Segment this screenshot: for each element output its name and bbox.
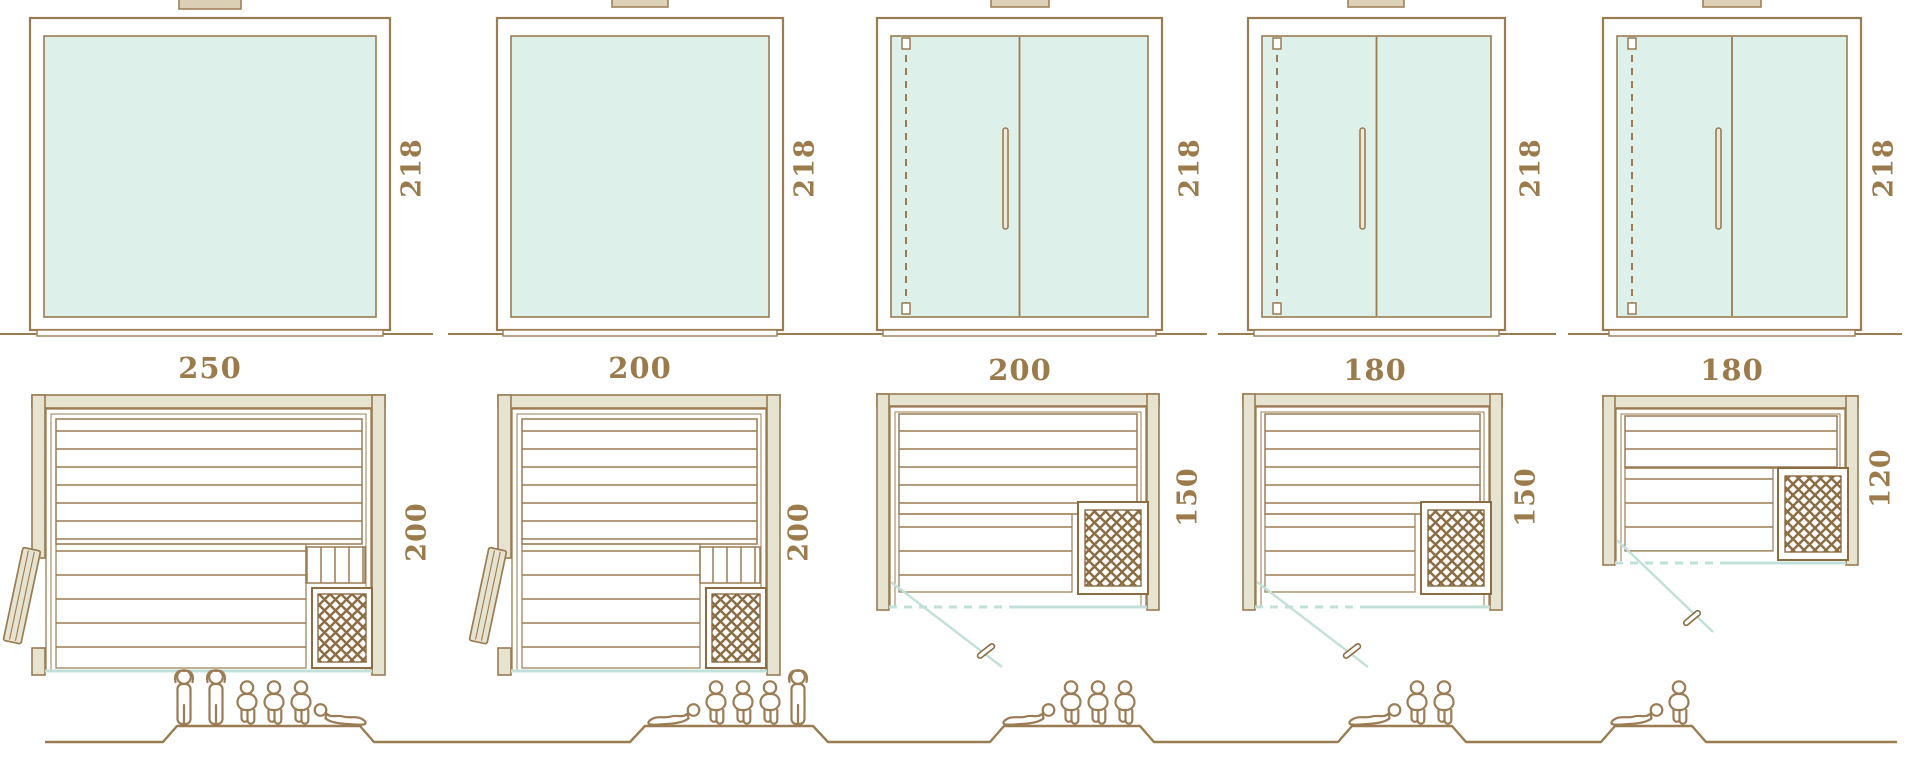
- heater-icon: [712, 594, 760, 662]
- floor-boards: [522, 544, 700, 668]
- base-plinth: [503, 330, 777, 336]
- plan-wall-top: [877, 394, 1159, 406]
- door-handle-icon: [1360, 128, 1365, 229]
- floor-plan: 200: [469, 395, 814, 675]
- plan-wall-top: [1603, 396, 1858, 408]
- depth-dimension-label: 150: [1511, 467, 1542, 526]
- hinge-icon: [1628, 38, 1636, 49]
- sauna-size-diagram: 218 250 200: [0, 0, 1920, 770]
- person-standing-icon: [207, 670, 225, 724]
- duckboard-slats: [306, 547, 365, 583]
- person-standing-icon: [175, 670, 193, 724]
- floor-plan: 120: [1603, 396, 1897, 632]
- people-capacity-group: [1349, 681, 1453, 724]
- plan-wall-left: [1603, 396, 1615, 565]
- width-dimension-label: 180: [1343, 353, 1407, 387]
- roof-vent: [1348, 0, 1404, 7]
- bench-slats: [1625, 416, 1837, 468]
- door-swing-line: [1617, 540, 1713, 632]
- heater-icon: [1785, 476, 1841, 552]
- base-plinth: [1609, 330, 1855, 336]
- glass-panel: [511, 36, 769, 317]
- plan-wall-top: [498, 395, 780, 408]
- plan-wall-left-post: [498, 648, 511, 675]
- plan-wall-right: [767, 395, 780, 675]
- height-dimension-label: 218: [1516, 138, 1547, 197]
- person-sitting-icon: [292, 681, 311, 724]
- sauna-column-3: 218 200 150: [877, 0, 1206, 725]
- person-sitting-icon: [761, 681, 780, 724]
- width-dimension-label: 200: [988, 353, 1052, 387]
- depth-dimension-label: 150: [1173, 467, 1204, 526]
- sauna-column-1: 218 250 200: [3, 0, 432, 725]
- floor-plan: 200: [3, 395, 432, 675]
- person-sitting-icon: [1408, 681, 1427, 724]
- plan-wall-left: [877, 394, 889, 610]
- width-dimension-label: 180: [1700, 353, 1764, 387]
- sauna-column-2: 218 200 200: [469, 0, 820, 725]
- seating-platform-line: [45, 726, 1897, 742]
- height-dimension-label: 218: [1175, 138, 1206, 197]
- height-dimension-label: 218: [790, 138, 821, 197]
- base-plinth: [1254, 330, 1499, 336]
- person-sitting-icon: [1670, 681, 1689, 724]
- person-sitting-icon: [238, 681, 257, 724]
- depth-dimension-label: 200: [784, 502, 815, 561]
- hinge-icon: [1628, 303, 1636, 314]
- bench-slats: [899, 414, 1137, 514]
- hinge-icon: [902, 303, 910, 314]
- bench-slats: [522, 419, 757, 544]
- plan-door-leaf: [469, 547, 506, 644]
- heater-icon: [1085, 510, 1141, 586]
- plan-wall-top: [32, 395, 385, 408]
- roof-vent: [179, 0, 241, 9]
- door-handle-icon: [1003, 128, 1008, 229]
- sauna-column-5: 218 180 120: [1603, 0, 1900, 725]
- floor-boards: [1265, 514, 1415, 592]
- roof-vent: [991, 0, 1049, 7]
- plan-door-leaf: [3, 547, 40, 644]
- floor-boards: [899, 514, 1072, 592]
- people-capacity-group: [1003, 681, 1134, 724]
- height-dimension-label: 218: [1869, 138, 1900, 197]
- diagram-canvas: 218 250 200: [0, 0, 1920, 770]
- bench-slats: [1265, 414, 1480, 514]
- floor-plan: 150: [1243, 394, 1542, 667]
- base-plinth: [883, 330, 1156, 336]
- plan-wall-left-post: [32, 648, 45, 675]
- person-sitting-icon: [1435, 681, 1454, 724]
- person-lying-icon: [1349, 704, 1400, 725]
- floor-plan: 150: [877, 394, 1204, 667]
- width-dimension-label: 250: [178, 351, 242, 385]
- people-capacity-group: [175, 670, 366, 725]
- floor-boards: [1625, 468, 1773, 551]
- hinge-icon: [1273, 303, 1281, 314]
- door-handle-icon: [1716, 128, 1721, 229]
- people-capacity-group: [1611, 681, 1688, 724]
- person-sitting-icon: [707, 681, 726, 724]
- glass-panel: [44, 36, 376, 317]
- height-dimension-label: 218: [397, 138, 428, 197]
- person-standing-icon: [789, 670, 807, 724]
- base-plinth: [37, 330, 383, 336]
- plan-wall-left: [32, 395, 45, 558]
- hinge-icon: [1273, 38, 1281, 49]
- person-sitting-icon: [1062, 681, 1081, 724]
- roof-vent: [1703, 0, 1761, 7]
- bench-slats: [56, 419, 362, 544]
- floor-boards: [56, 544, 306, 668]
- heater-icon: [318, 594, 366, 662]
- plan-wall-left: [1243, 394, 1255, 610]
- sauna-column-4: 218 180 150: [1243, 0, 1547, 725]
- plan-wall-left: [498, 395, 511, 558]
- person-lying-icon: [648, 704, 699, 725]
- depth-dimension-label: 200: [402, 502, 433, 561]
- person-sitting-icon: [1116, 681, 1135, 724]
- plan-wall-right: [372, 395, 385, 675]
- person-sitting-icon: [1089, 681, 1108, 724]
- person-lying-icon: [1003, 704, 1054, 725]
- people-capacity-group: [648, 670, 807, 725]
- depth-dimension-label: 120: [1866, 448, 1897, 507]
- person-lying-icon: [315, 704, 366, 725]
- person-sitting-icon: [734, 681, 753, 724]
- plan-wall-top: [1243, 394, 1502, 406]
- person-sitting-icon: [265, 681, 284, 724]
- hinge-icon: [902, 38, 910, 49]
- roof-vent: [612, 0, 668, 7]
- duckboard-slats: [700, 547, 760, 583]
- person-lying-icon: [1611, 704, 1662, 725]
- heater-icon: [1428, 510, 1484, 586]
- width-dimension-label: 200: [608, 351, 672, 385]
